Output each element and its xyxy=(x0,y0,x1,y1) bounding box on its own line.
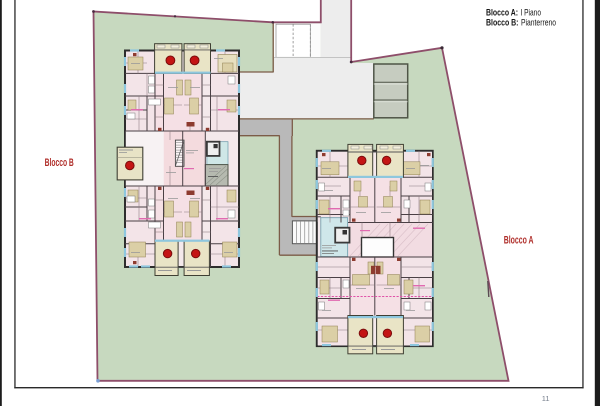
svg-text:I Piano: I Piano xyxy=(521,8,542,18)
svg-text:Blocco A: Blocco A xyxy=(504,235,534,247)
svg-text:Blocco B:: Blocco B: xyxy=(486,18,519,28)
svg-text:Blocco B: Blocco B xyxy=(45,157,74,169)
svg-text:Blocco A:: Blocco A: xyxy=(486,8,518,18)
svg-text:11: 11 xyxy=(542,394,550,403)
svg-text:Pianterreno: Pianterreno xyxy=(521,18,556,28)
